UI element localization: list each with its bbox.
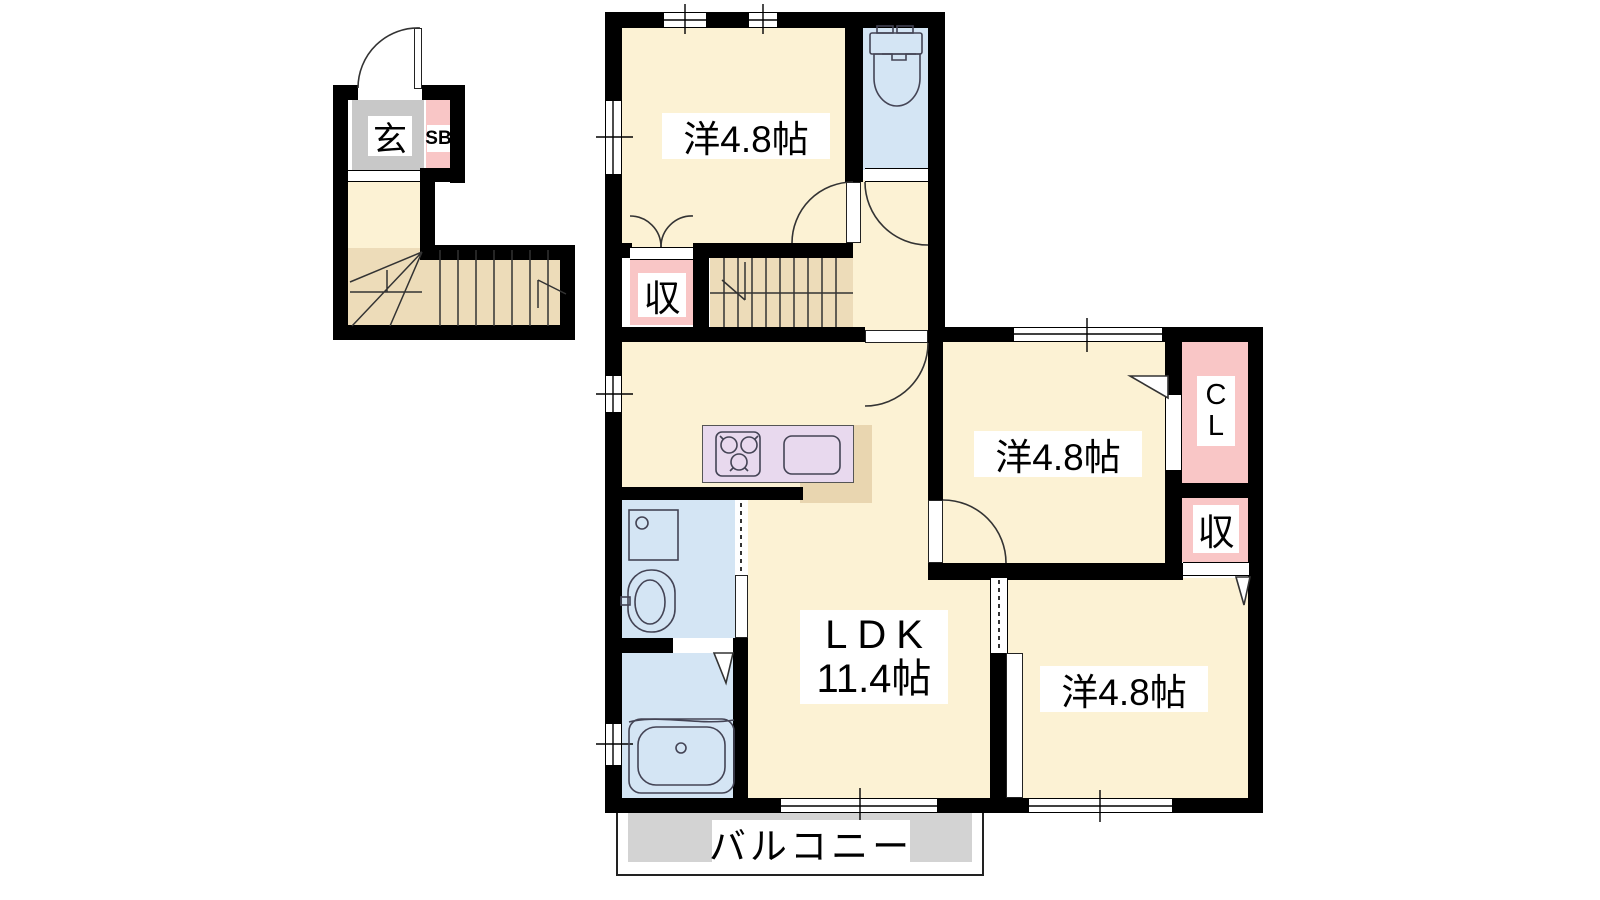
bedroom-middle-label: 洋4.8帖 [974,431,1142,477]
bathtub-fixture [629,719,734,793]
bedroom-bottom-label: 洋4.8帖 [1040,666,1208,712]
toilet-fixture [870,26,922,106]
right-storage-label: 収 [1193,505,1239,553]
sink-icon [784,436,840,474]
entrance-label: 玄 [368,116,412,156]
outer-stairs-icon [350,250,566,326]
stove-icon [716,432,760,476]
door-markers [714,376,1250,683]
ldk-name: LDK [815,613,933,657]
balcony-label: バルコニー [712,820,910,866]
washroom-toilet-fixture [621,570,675,632]
ldk-label: LDK 11.4帖 [800,610,948,704]
closet-label: CL [1197,376,1235,446]
inner-stairs-icon [710,258,853,327]
shoe-box-label: SB [427,125,450,152]
floorplan-canvas: 玄 SB 洋4.8帖 収 洋4.8帖 CL 収 LDK 11.4帖 洋4.8帖 … [0,0,1600,900]
ldk-size: 11.4帖 [817,657,932,701]
vanity-fixture [629,510,678,560]
bedroom-top-label: 洋4.8帖 [662,113,830,159]
hall-storage-label: 収 [638,273,686,317]
closet-label-text: CL [1199,380,1233,443]
